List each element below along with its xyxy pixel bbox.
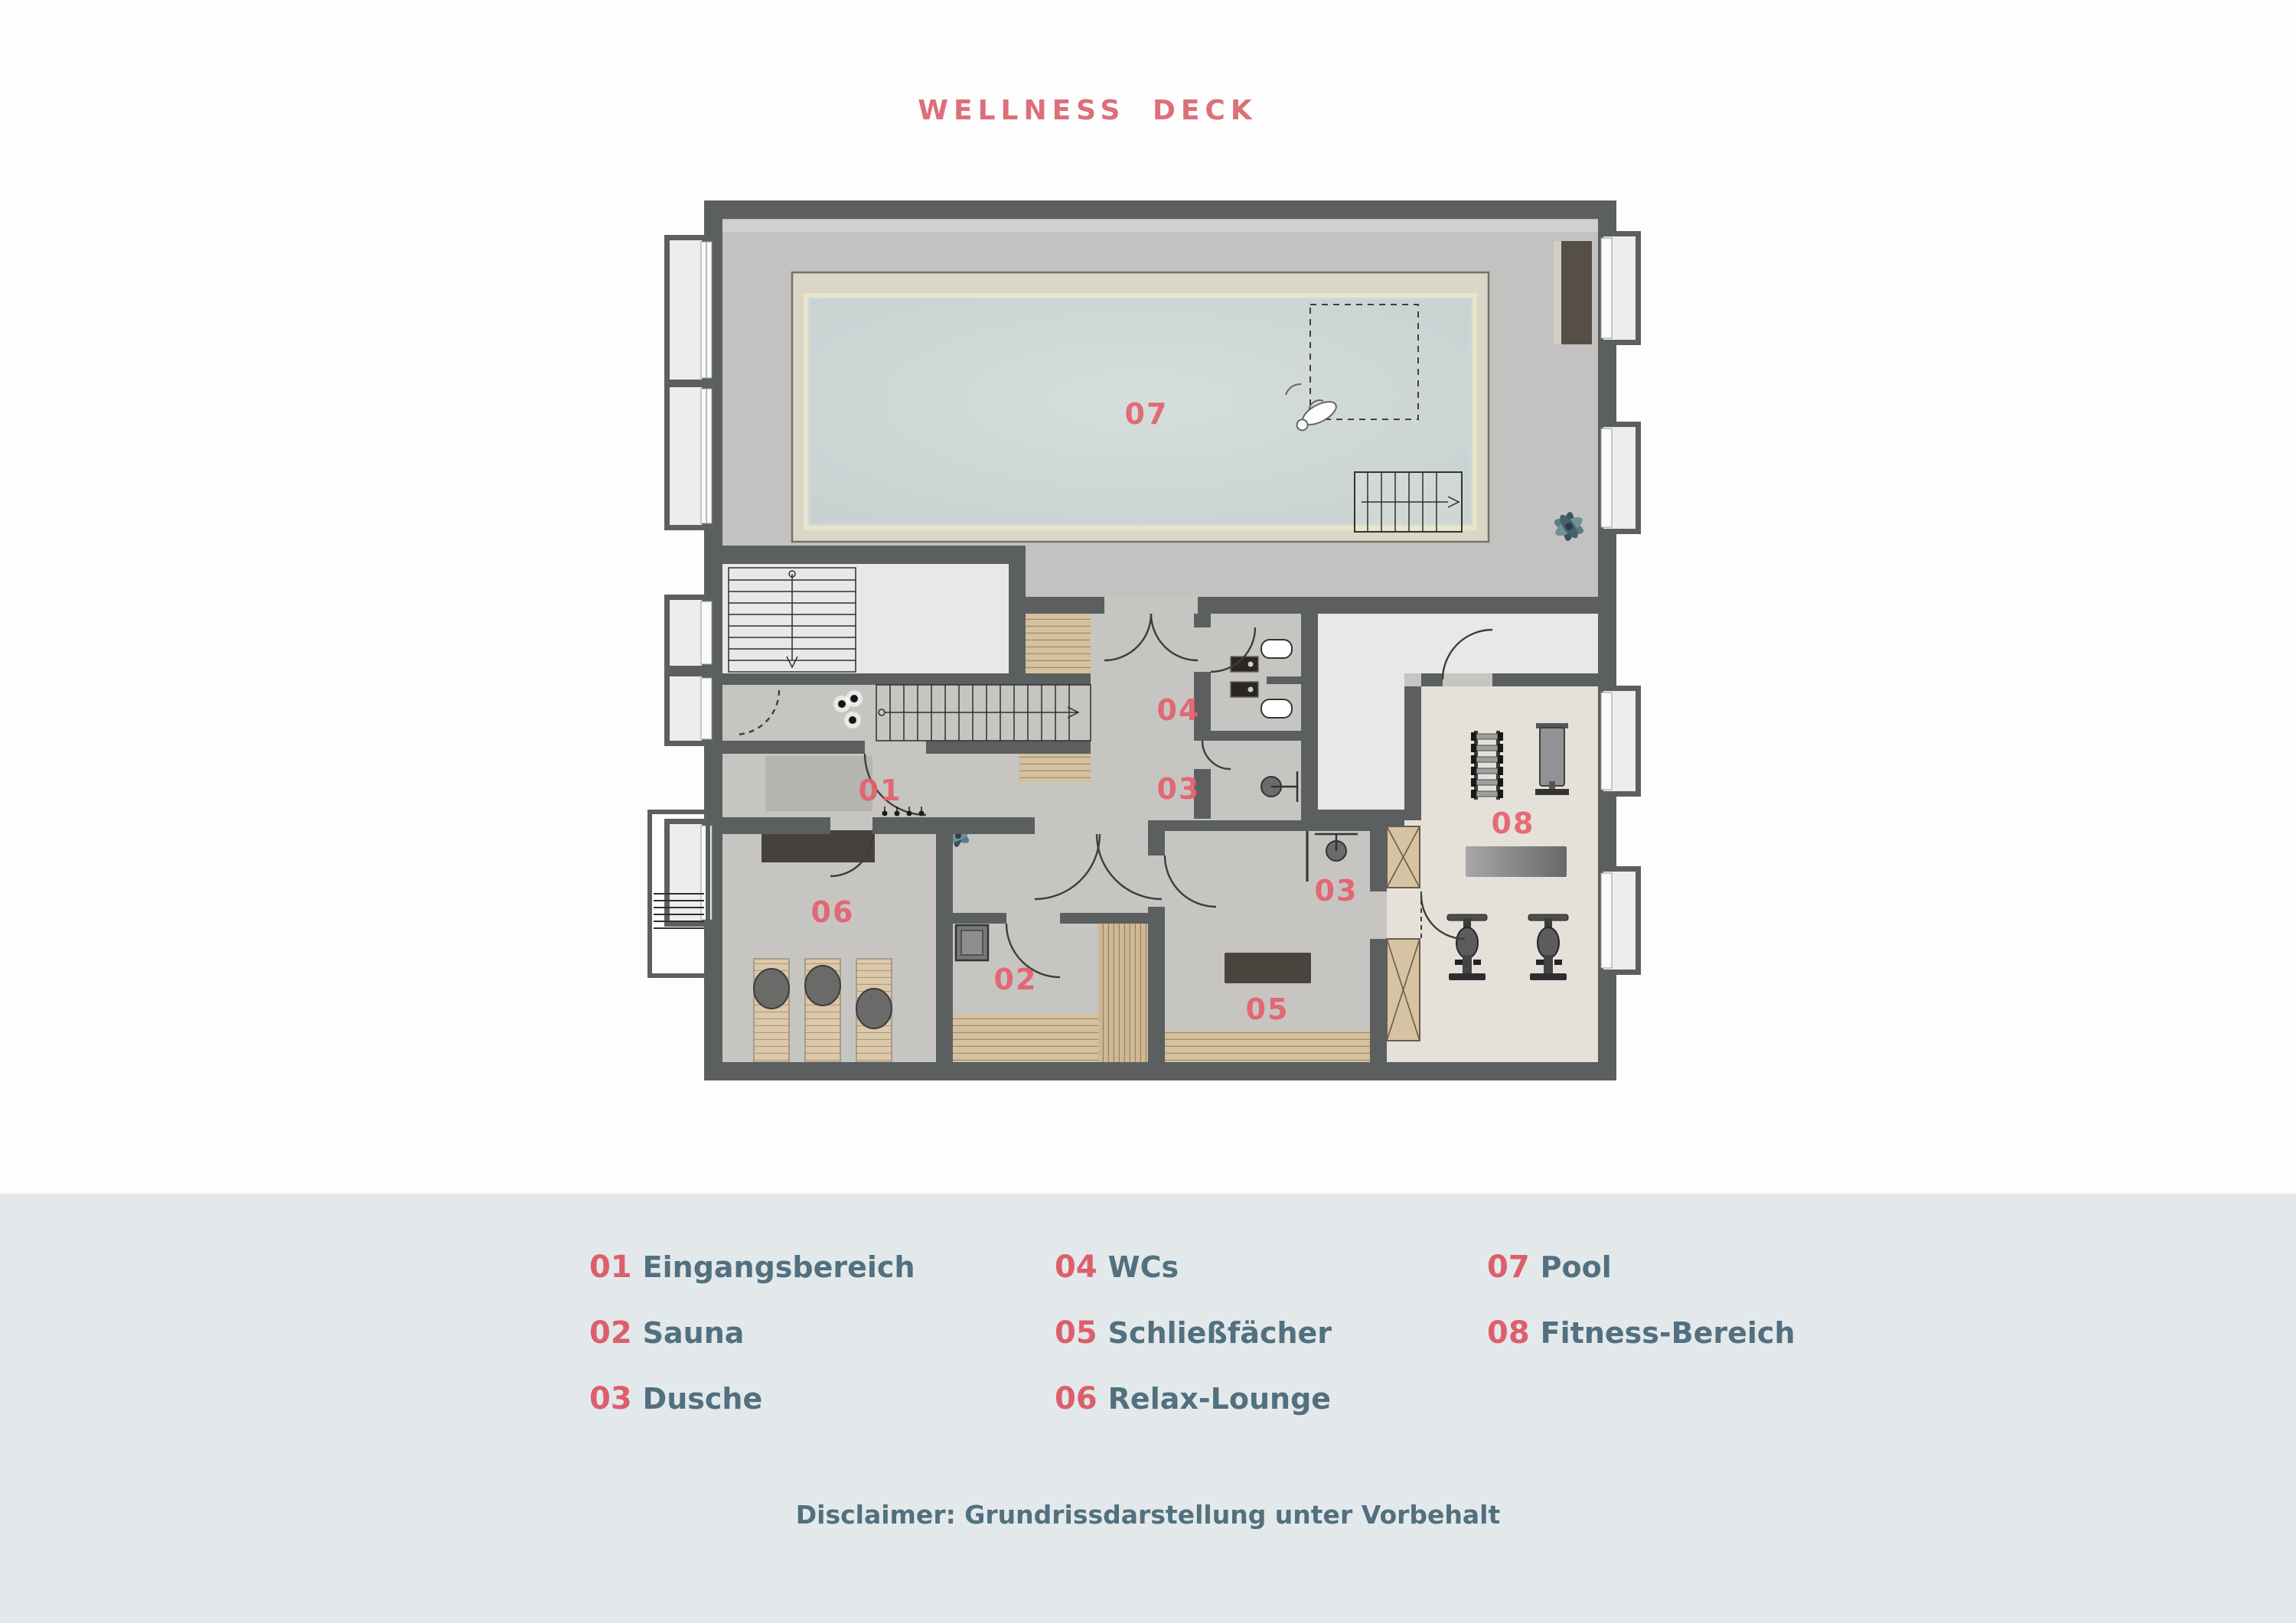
lounger: [805, 959, 840, 1062]
white-room-strip: [1318, 614, 1404, 810]
poster: WELLNESS DECK: [0, 0, 2296, 1623]
workout-bench: [1535, 723, 1569, 795]
legend-item-07: 07Pool: [1487, 1250, 1612, 1284]
legend-num: 08: [1487, 1316, 1530, 1350]
disclaimer-text: Disclaimer: Grundrissdarstellung unter V…: [0, 1500, 2296, 1530]
wood-mat-1: [1026, 614, 1091, 677]
cabinet-side: [1554, 241, 1561, 344]
room-label-07: 07: [1125, 397, 1169, 431]
window-bay: [1598, 422, 1641, 534]
sauna-bench: [953, 1014, 1098, 1064]
legend-num: 06: [1055, 1382, 1097, 1416]
lounger: [856, 959, 892, 1062]
stair-room-floor: [722, 562, 1009, 673]
legend-label: Schließfächer: [1108, 1316, 1332, 1350]
room-label-08: 08: [1492, 807, 1535, 840]
legend-num: 04: [1055, 1250, 1097, 1284]
legend-item-05: 05Schließfächer: [1055, 1316, 1332, 1350]
window-bay: [1598, 686, 1641, 797]
pool: [792, 241, 1592, 542]
room-label-01: 01: [859, 774, 902, 807]
sauna-slats: [1098, 924, 1148, 1064]
pool-stairs: [1355, 472, 1462, 532]
legend-label: Eingangsbereich: [643, 1250, 915, 1284]
room-label-04: 04: [1157, 693, 1201, 727]
wc-icon: [1261, 699, 1292, 718]
legend-label: Relax-Lounge: [1108, 1382, 1331, 1416]
locker-bench: [1225, 953, 1311, 983]
legend-num: 01: [589, 1250, 632, 1284]
sink-faucet: [1248, 687, 1254, 693]
room-label-06: 06: [811, 895, 855, 929]
legend-num: 05: [1055, 1316, 1097, 1350]
sink-icon: [1231, 682, 1258, 697]
pool-cabinet: [1561, 241, 1592, 344]
fitness-mat: [1466, 846, 1567, 877]
room-label-05: 05: [1246, 992, 1290, 1026]
legend-label: Fitness-Bereich: [1541, 1316, 1795, 1350]
window-bay: [1598, 866, 1641, 975]
floor-plan: 01 02 03 03 04 05 06 07 08: [647, 195, 1657, 1090]
legend-item-08: 08Fitness-Bereich: [1487, 1316, 1795, 1350]
legend-item-04: 04WCs: [1055, 1250, 1179, 1284]
locker-room-wood-floor: [1165, 1031, 1370, 1064]
legend-label: Pool: [1541, 1250, 1612, 1284]
window-bay: [664, 382, 712, 530]
legend-item-02: 02Sauna: [589, 1316, 744, 1350]
legend-item-03: 03Dusche: [589, 1382, 762, 1416]
doormat: [765, 756, 872, 811]
window-bay: [664, 595, 712, 671]
legend-item-01: 01Eingangsbereich: [589, 1250, 915, 1284]
legend-label: WCs: [1108, 1250, 1179, 1284]
window-bay: [664, 671, 712, 746]
legend-num: 07: [1487, 1250, 1530, 1284]
legend-num: 03: [589, 1382, 632, 1416]
window-bay: [664, 819, 712, 927]
sink-faucet: [1248, 662, 1254, 667]
ceiling-glow: [722, 220, 1598, 232]
window-bay: [664, 235, 712, 385]
legend-label: Sauna: [643, 1316, 745, 1350]
room-label-03b: 03: [1315, 874, 1358, 908]
legend-num: 02: [589, 1316, 632, 1350]
page-title: WELLNESS DECK: [918, 95, 1257, 126]
legend-item-06: 06Relax-Lounge: [1055, 1382, 1331, 1416]
lounger: [754, 959, 789, 1062]
wc-icon: [1261, 640, 1292, 658]
room-label-02: 02: [994, 963, 1038, 996]
window-bay: [1598, 231, 1641, 345]
sauna-heater-top: [961, 930, 983, 955]
wood-mat-2: [1019, 754, 1091, 782]
legend-label: Dusche: [643, 1382, 763, 1416]
room-label-03: 03: [1157, 772, 1201, 806]
sideboard: [762, 830, 875, 862]
